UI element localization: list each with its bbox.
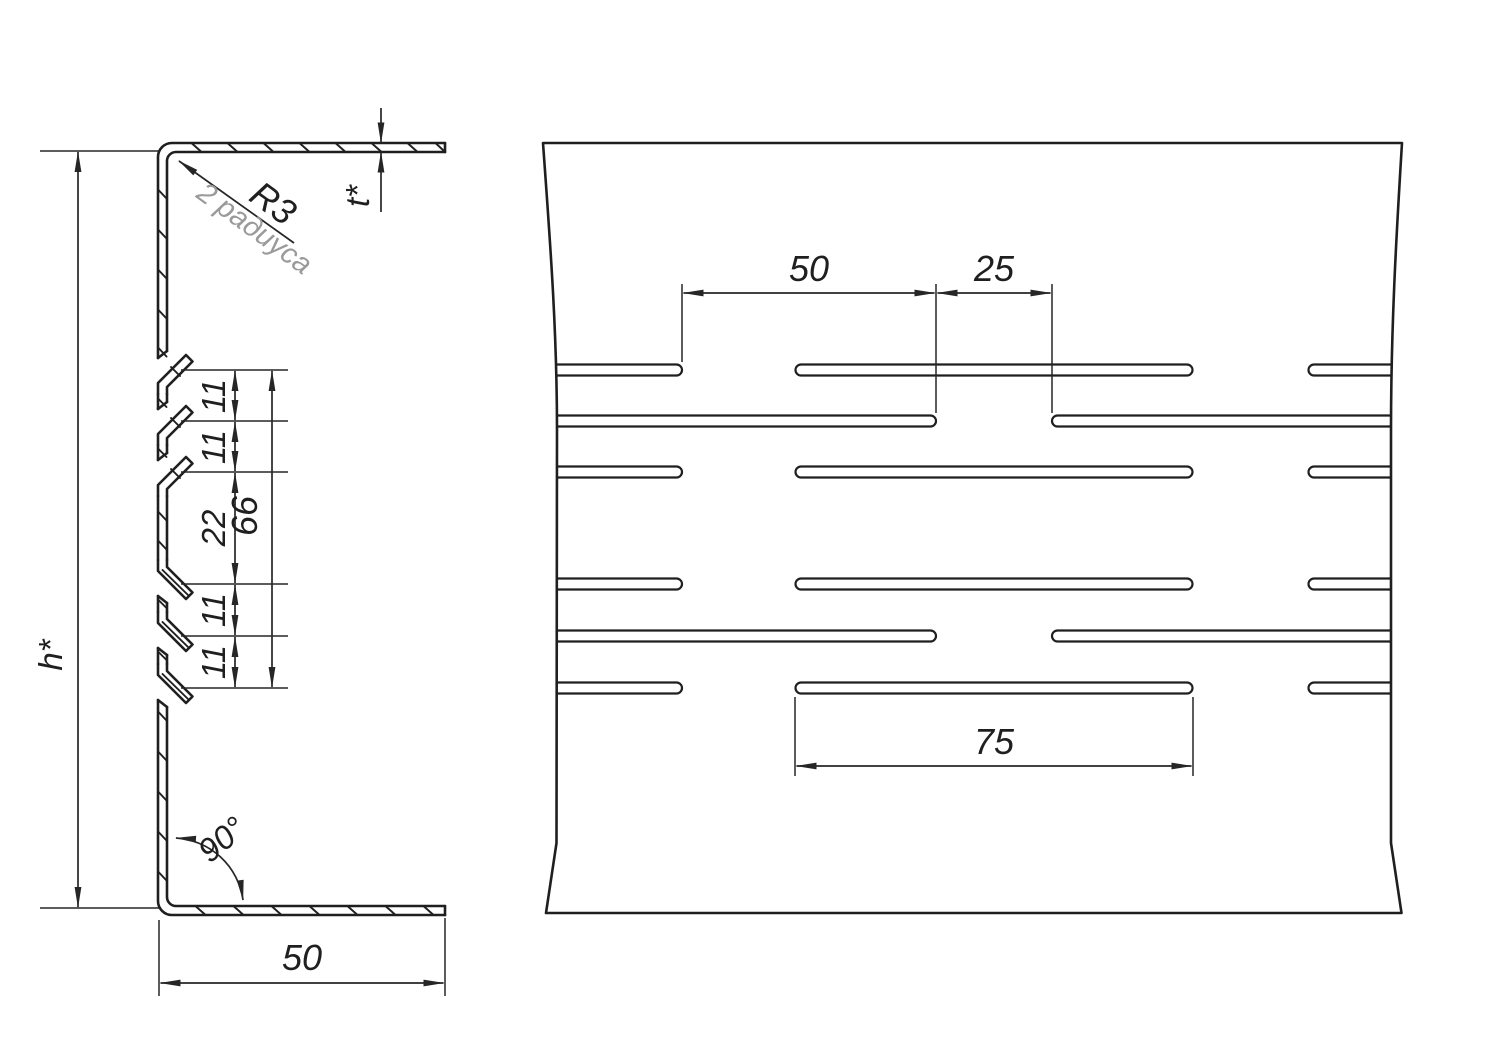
slot-length-dimension: 75 — [795, 697, 1193, 776]
slot-open-left — [556, 579, 682, 590]
louver-slit-cut — [158, 700, 167, 707]
slot-gap-label: 25 — [973, 248, 1015, 289]
slot-row — [556, 416, 1391, 427]
hatching-top-flange — [192, 144, 444, 152]
slot-open-right — [1309, 467, 1391, 478]
flange-width-label: 50 — [282, 937, 322, 978]
bottom-flange-outer — [158, 700, 445, 915]
extension-line — [682, 284, 1052, 413]
slot-open-right — [1309, 579, 1391, 590]
slot-offset-label: 50 — [789, 248, 829, 289]
bottom-flange-inner — [167, 707, 445, 906]
radius-callout: R3 2 радиуса — [179, 161, 318, 281]
notch-chain-dimension: 11 11 22 11 11 66 — [181, 370, 288, 688]
slot-row — [556, 631, 1391, 642]
panel-outline — [543, 143, 1402, 913]
slot — [796, 365, 1193, 376]
extension-line — [40, 151, 159, 908]
slot-row — [556, 467, 1391, 478]
chain-dim-label: 11 — [195, 645, 232, 679]
slot-open-right — [1052, 416, 1391, 427]
flange-width-dimension: 50 — [159, 918, 445, 996]
thickness-dimension: t* — [339, 108, 381, 212]
height-label: h* — [32, 638, 69, 670]
slot-open-left — [556, 467, 682, 478]
chain-span-label: 66 — [224, 495, 265, 536]
slot-open-right — [1052, 631, 1391, 642]
angle-label: 90° — [191, 809, 253, 869]
slot-row — [556, 365, 1391, 376]
slot-open-left — [556, 683, 682, 694]
slot — [796, 467, 1193, 478]
slot-offset-dimension: 50 25 — [682, 248, 1052, 413]
technical-drawing: h* t* R3 2 радиуса 90° 50 — [0, 0, 1500, 1061]
plan-view: 50 25 75 — [543, 143, 1402, 913]
slot-open-left — [556, 416, 936, 427]
hatching-bottom-flange — [196, 907, 433, 915]
chain-dim-label: 11 — [195, 593, 232, 627]
slot-length-label: 75 — [974, 721, 1015, 762]
hatching-web — [159, 190, 167, 881]
slot-open-right — [1309, 365, 1391, 376]
slot — [796, 683, 1193, 694]
slot-open-left — [556, 631, 936, 642]
slot-open-right — [1309, 683, 1391, 694]
chain-dim-label: 11 — [195, 379, 232, 413]
louver-tab — [158, 355, 193, 394]
chain-dim-label: 11 — [195, 430, 232, 464]
slot-row — [556, 579, 1391, 590]
thickness-label: t* — [339, 184, 376, 207]
slot-row — [556, 683, 1391, 694]
drawing-sheet: h* t* R3 2 радиуса 90° 50 — [0, 0, 1500, 1061]
slot-open-left — [556, 365, 682, 376]
height-dimension: h* — [32, 151, 159, 908]
slot — [796, 579, 1193, 590]
louver-tab — [158, 406, 193, 445]
angle-dimension: 90° — [176, 809, 253, 900]
louver-tab — [158, 457, 193, 496]
section-view: h* t* R3 2 радиуса 90° 50 — [32, 108, 445, 996]
